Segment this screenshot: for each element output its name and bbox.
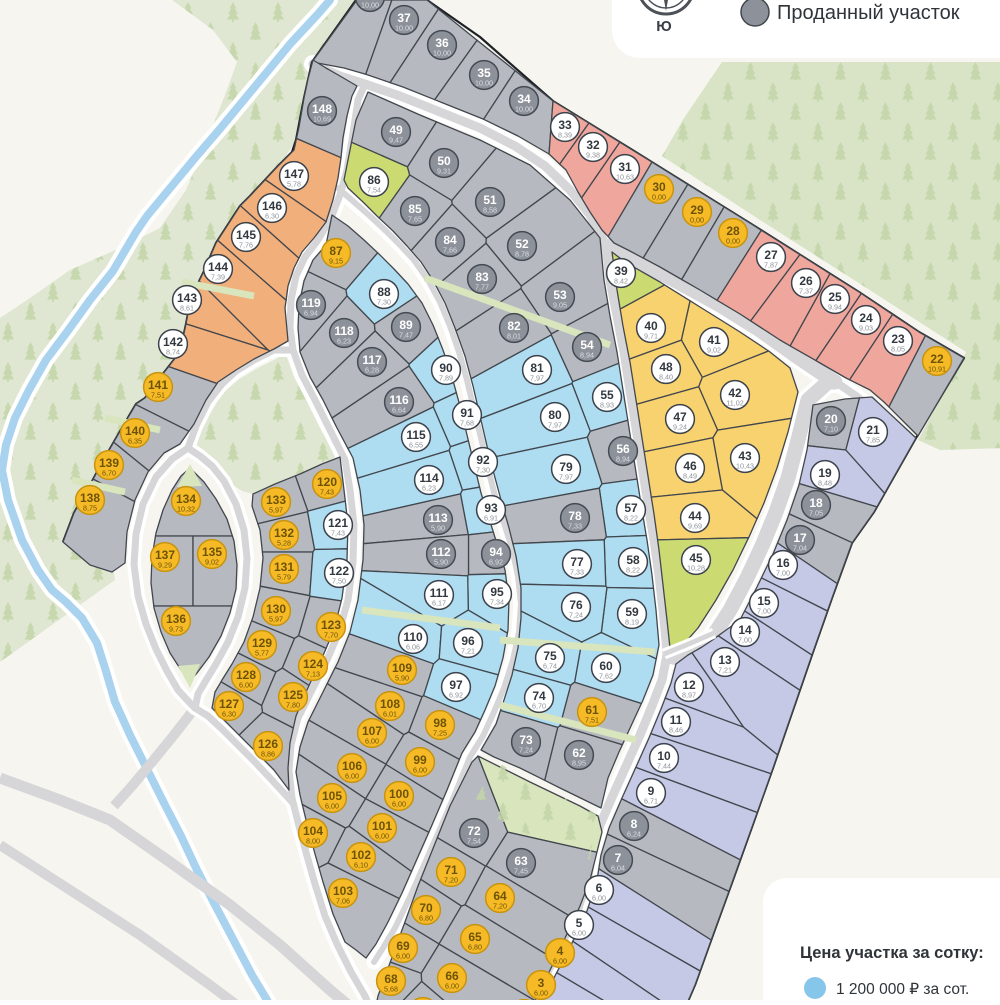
svg-text:9,31: 9,31 xyxy=(437,167,451,176)
svg-text:6,23: 6,23 xyxy=(337,337,351,346)
svg-text:7,50: 7,50 xyxy=(332,577,346,586)
svg-text:0,00: 0,00 xyxy=(652,193,666,202)
svg-text:6,30: 6,30 xyxy=(265,212,279,221)
svg-text:7,89: 7,89 xyxy=(439,374,453,383)
svg-text:7,33: 7,33 xyxy=(568,522,582,531)
svg-text:7,65: 7,65 xyxy=(408,215,422,224)
svg-text:6,80: 6,80 xyxy=(468,943,482,952)
svg-text:7,44: 7,44 xyxy=(657,762,671,771)
svg-text:9,24: 9,24 xyxy=(673,423,687,432)
svg-text:7,21: 7,21 xyxy=(461,647,475,656)
svg-text:7,87: 7,87 xyxy=(764,261,778,270)
svg-text:7,04: 7,04 xyxy=(793,544,807,553)
svg-text:7,24: 7,24 xyxy=(569,611,583,620)
svg-text:7,20: 7,20 xyxy=(493,902,507,911)
svg-text:7,68: 7,68 xyxy=(460,419,474,428)
svg-text:7,62: 7,62 xyxy=(599,672,613,681)
svg-text:8,49: 8,49 xyxy=(683,472,697,481)
svg-text:7,37: 7,37 xyxy=(799,287,813,296)
svg-text:7,30: 7,30 xyxy=(377,298,391,307)
svg-text:6,00: 6,00 xyxy=(572,929,586,938)
svg-text:5,78: 5,78 xyxy=(287,180,301,189)
svg-text:6,00: 6,00 xyxy=(445,982,459,991)
svg-text:5,97: 5,97 xyxy=(269,615,283,624)
svg-text:6,00: 6,00 xyxy=(534,989,548,998)
svg-text:10,43: 10,43 xyxy=(736,462,754,471)
svg-text:6,00: 6,00 xyxy=(413,766,427,775)
svg-text:8,01: 8,01 xyxy=(507,332,521,341)
svg-text:0,00: 0,00 xyxy=(726,237,740,246)
svg-text:7,34: 7,34 xyxy=(490,598,504,607)
svg-text:9,29: 9,29 xyxy=(158,561,172,570)
svg-text:6,64: 6,64 xyxy=(392,406,406,415)
svg-text:7,00: 7,00 xyxy=(738,636,752,645)
svg-text:8,48: 8,48 xyxy=(818,479,832,488)
svg-text:7,76: 7,76 xyxy=(239,241,253,250)
svg-text:7,00: 7,00 xyxy=(757,607,771,616)
svg-text:8,40: 8,40 xyxy=(659,373,673,382)
svg-text:6,04: 6,04 xyxy=(611,864,625,873)
svg-text:9,73: 9,73 xyxy=(169,625,183,634)
svg-text:7,45: 7,45 xyxy=(514,867,528,876)
svg-text:6,00: 6,00 xyxy=(553,957,567,966)
svg-text:6,00: 6,00 xyxy=(325,802,339,811)
svg-text:6,00: 6,00 xyxy=(375,832,389,841)
svg-text:6,94: 6,94 xyxy=(304,309,318,318)
svg-text:5,28: 5,28 xyxy=(277,539,291,548)
svg-text:10,69: 10,69 xyxy=(313,115,331,124)
svg-text:Цена участка за сотку:: Цена участка за сотку: xyxy=(800,944,984,962)
svg-text:9,47: 9,47 xyxy=(389,136,403,145)
svg-text:8,39: 8,39 xyxy=(558,131,572,140)
svg-text:7,43: 7,43 xyxy=(320,488,334,497)
svg-text:6,01: 6,01 xyxy=(383,710,397,719)
svg-text:6,80: 6,80 xyxy=(419,914,433,923)
svg-text:8,61: 8,61 xyxy=(180,304,194,313)
svg-text:8,19: 8,19 xyxy=(625,618,639,627)
svg-text:7,47: 7,47 xyxy=(399,331,413,340)
svg-text:6,00: 6,00 xyxy=(239,681,253,690)
svg-text:8,22: 8,22 xyxy=(626,566,640,575)
svg-text:8,74: 8,74 xyxy=(166,348,180,357)
svg-text:5,90: 5,90 xyxy=(395,674,409,683)
svg-text:8,94: 8,94 xyxy=(616,455,630,464)
svg-text:8,95: 8,95 xyxy=(572,759,586,768)
svg-text:5,77: 5,77 xyxy=(255,649,269,658)
svg-text:7,13: 7,13 xyxy=(306,670,320,679)
svg-text:7,51: 7,51 xyxy=(151,391,165,400)
svg-text:6,17: 6,17 xyxy=(432,599,446,608)
svg-text:8,75: 8,75 xyxy=(83,504,97,513)
svg-text:10,00: 10,00 xyxy=(395,24,413,33)
svg-text:10,00: 10,00 xyxy=(361,1,379,10)
svg-text:5,90: 5,90 xyxy=(431,524,445,533)
svg-text:8,46: 8,46 xyxy=(669,726,683,735)
svg-text:5,68: 5,68 xyxy=(384,985,398,994)
svg-text:7,97: 7,97 xyxy=(548,421,562,430)
svg-text:8,05: 8,05 xyxy=(891,345,905,354)
svg-text:7,39: 7,39 xyxy=(211,273,225,282)
svg-text:6,35: 6,35 xyxy=(128,437,142,446)
svg-text:7,05: 7,05 xyxy=(809,509,823,518)
svg-text:10,91: 10,91 xyxy=(928,365,946,374)
svg-text:9,03: 9,03 xyxy=(859,324,873,333)
svg-text:7,97: 7,97 xyxy=(530,374,544,383)
svg-text:9,94: 9,94 xyxy=(828,303,842,312)
svg-text:9,02: 9,02 xyxy=(707,346,721,355)
svg-text:7,25: 7,25 xyxy=(433,729,447,738)
svg-text:9,38: 9,38 xyxy=(586,151,600,160)
svg-text:7,77: 7,77 xyxy=(475,283,489,292)
svg-text:7,70: 7,70 xyxy=(324,631,338,640)
svg-text:5,97: 5,97 xyxy=(269,506,283,515)
svg-text:6,70: 6,70 xyxy=(102,469,116,478)
svg-text:10,00: 10,00 xyxy=(433,49,451,58)
svg-text:6,28: 6,28 xyxy=(365,366,379,375)
svg-text:6,00: 6,00 xyxy=(365,737,379,746)
svg-text:7,43: 7,43 xyxy=(331,529,345,538)
svg-text:7,30: 7,30 xyxy=(476,466,490,475)
svg-text:10,00: 10,00 xyxy=(475,79,493,88)
svg-text:6,24: 6,24 xyxy=(627,830,641,839)
svg-text:Ю: Ю xyxy=(656,18,671,35)
svg-text:6,91: 6,91 xyxy=(484,514,498,523)
svg-text:9,71: 9,71 xyxy=(644,332,658,341)
svg-text:8,00: 8,00 xyxy=(306,837,320,846)
svg-text:Проданный участок: Проданный участок xyxy=(777,2,960,24)
svg-text:5,90: 5,90 xyxy=(434,558,448,567)
svg-text:8,22: 8,22 xyxy=(624,514,638,523)
svg-text:9,05: 9,05 xyxy=(553,301,567,310)
svg-text:6,71: 6,71 xyxy=(644,797,658,806)
svg-text:6,00: 6,00 xyxy=(392,800,406,809)
svg-text:6,92: 6,92 xyxy=(449,691,463,700)
svg-text:10,32: 10,32 xyxy=(177,505,195,514)
svg-text:5,79: 5,79 xyxy=(277,573,291,582)
svg-text:10,28: 10,28 xyxy=(687,564,705,573)
svg-text:7,21: 7,21 xyxy=(718,666,732,675)
svg-text:6,92: 6,92 xyxy=(489,558,503,567)
svg-text:9,15: 9,15 xyxy=(329,257,343,266)
svg-text:10,63: 10,63 xyxy=(616,173,634,182)
svg-text:6,06: 6,06 xyxy=(406,643,420,652)
svg-text:8,94: 8,94 xyxy=(580,351,594,360)
svg-text:7,80: 7,80 xyxy=(286,701,300,710)
svg-text:6,00: 6,00 xyxy=(592,894,606,903)
svg-text:8,86: 8,86 xyxy=(261,750,275,759)
svg-text:7,24: 7,24 xyxy=(519,746,533,755)
svg-text:7,06: 7,06 xyxy=(336,897,350,906)
svg-text:7,85: 7,85 xyxy=(866,436,880,445)
svg-text:7,51: 7,51 xyxy=(585,716,599,725)
svg-text:1 200 000 ₽ за сот.: 1 200 000 ₽ за сот. xyxy=(836,981,969,998)
svg-text:6,23: 6,23 xyxy=(422,484,436,493)
svg-text:8,58: 8,58 xyxy=(483,206,497,215)
svg-text:6,10: 6,10 xyxy=(354,861,368,870)
svg-text:6,55: 6,55 xyxy=(409,441,423,450)
svg-text:7,97: 7,97 xyxy=(559,473,573,482)
svg-text:8,78: 8,78 xyxy=(515,250,529,259)
svg-text:7,20: 7,20 xyxy=(444,876,458,885)
svg-text:7,54: 7,54 xyxy=(467,837,481,846)
svg-text:7,54: 7,54 xyxy=(367,186,381,195)
svg-text:6,00: 6,00 xyxy=(396,952,410,961)
svg-text:6,74: 6,74 xyxy=(543,662,557,671)
svg-text:11,02: 11,02 xyxy=(726,399,743,408)
svg-text:6,30: 6,30 xyxy=(222,710,236,719)
svg-text:7,10: 7,10 xyxy=(824,425,838,434)
svg-text:10,00: 10,00 xyxy=(515,105,533,114)
svg-text:7,33: 7,33 xyxy=(570,568,584,577)
svg-text:9,69: 9,69 xyxy=(688,522,702,531)
svg-text:8,42: 8,42 xyxy=(614,277,628,286)
svg-text:9,02: 9,02 xyxy=(205,558,219,567)
svg-text:8,93: 8,93 xyxy=(600,401,614,410)
svg-text:7,66: 7,66 xyxy=(443,246,457,255)
svg-text:6,00: 6,00 xyxy=(345,772,359,781)
svg-text:0,00: 0,00 xyxy=(690,216,704,225)
svg-text:6,70: 6,70 xyxy=(532,702,546,711)
svg-text:7,00: 7,00 xyxy=(776,569,790,578)
svg-text:8,97: 8,97 xyxy=(682,691,696,700)
